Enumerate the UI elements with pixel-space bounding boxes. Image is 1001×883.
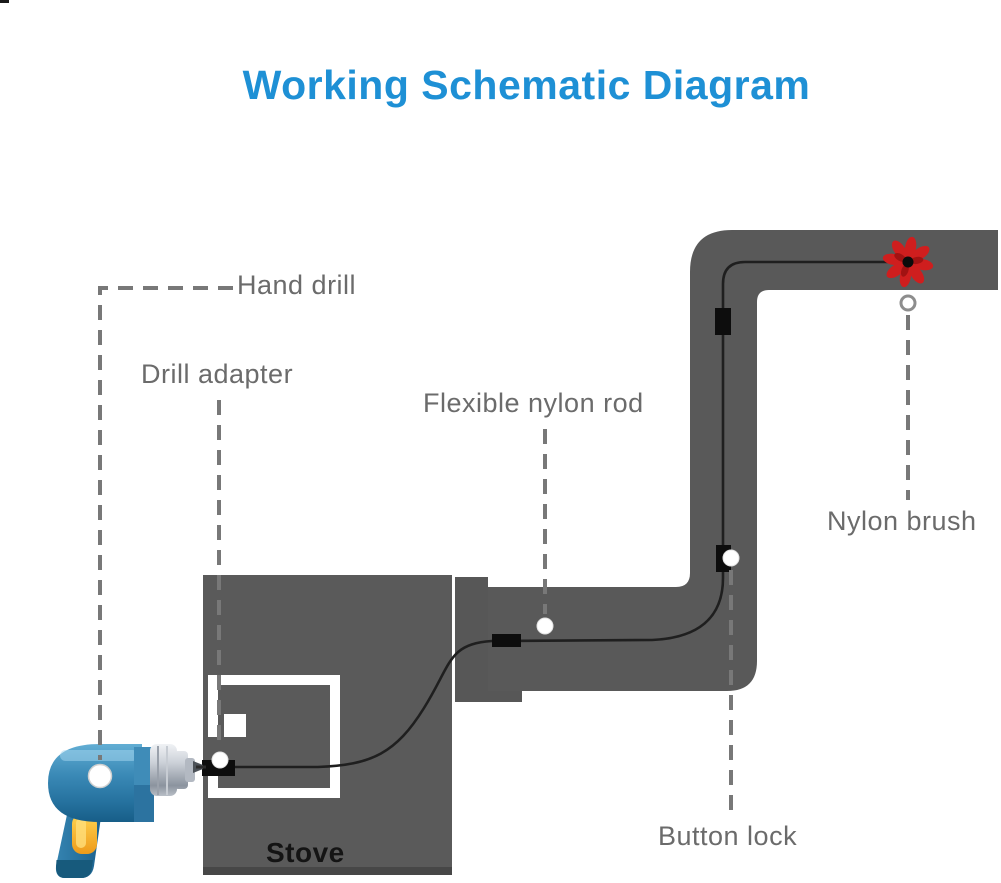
label-drill-adapter: Drill adapter	[141, 359, 293, 390]
brush-hub	[903, 257, 914, 268]
label-hand-drill: Hand drill	[237, 270, 356, 301]
drill-trigger-highlight	[76, 818, 86, 848]
pipe-flange-shape	[455, 577, 488, 702]
stove-door-bottom	[208, 788, 340, 798]
leader-dot-icon-hand-drill	[89, 765, 112, 788]
stove-door-right	[330, 675, 340, 798]
leader-dot-icon-nylon-brush	[901, 296, 915, 310]
schematic-diagram-canvas: Working Schematic Diagram Hand drill Dri…	[0, 0, 1001, 883]
button-lock-icon-upper	[715, 308, 731, 335]
stove-door-left-upper	[208, 675, 218, 737]
stove-door-left-lower	[208, 773, 218, 798]
leader-dot-icon-nylon-rod	[537, 618, 553, 634]
drill-bit	[196, 766, 206, 769]
leader-dot-icon-drill-adapter	[212, 752, 228, 768]
stove-door-top	[208, 675, 340, 685]
chimney-pipe-shape	[488, 230, 998, 691]
diagram-title: Working Schematic Diagram	[26, 62, 1001, 109]
drill-chuck	[150, 744, 177, 796]
label-nylon-brush: Nylon brush	[827, 506, 977, 537]
drill-handle-base	[56, 860, 93, 878]
schematic-svg	[0, 0, 1001, 883]
button-lock-icon-mid	[492, 634, 521, 647]
label-flexible-nylon-rod: Flexible nylon rod	[423, 388, 644, 419]
label-stove: Stove	[266, 837, 345, 869]
hand-drill-icon	[48, 744, 206, 878]
scan-artifact-mark	[0, 0, 9, 3]
leader-dot-icon-button-lock	[723, 550, 739, 566]
label-button-lock: Button lock	[658, 821, 797, 852]
stove-door-latch	[224, 714, 246, 737]
